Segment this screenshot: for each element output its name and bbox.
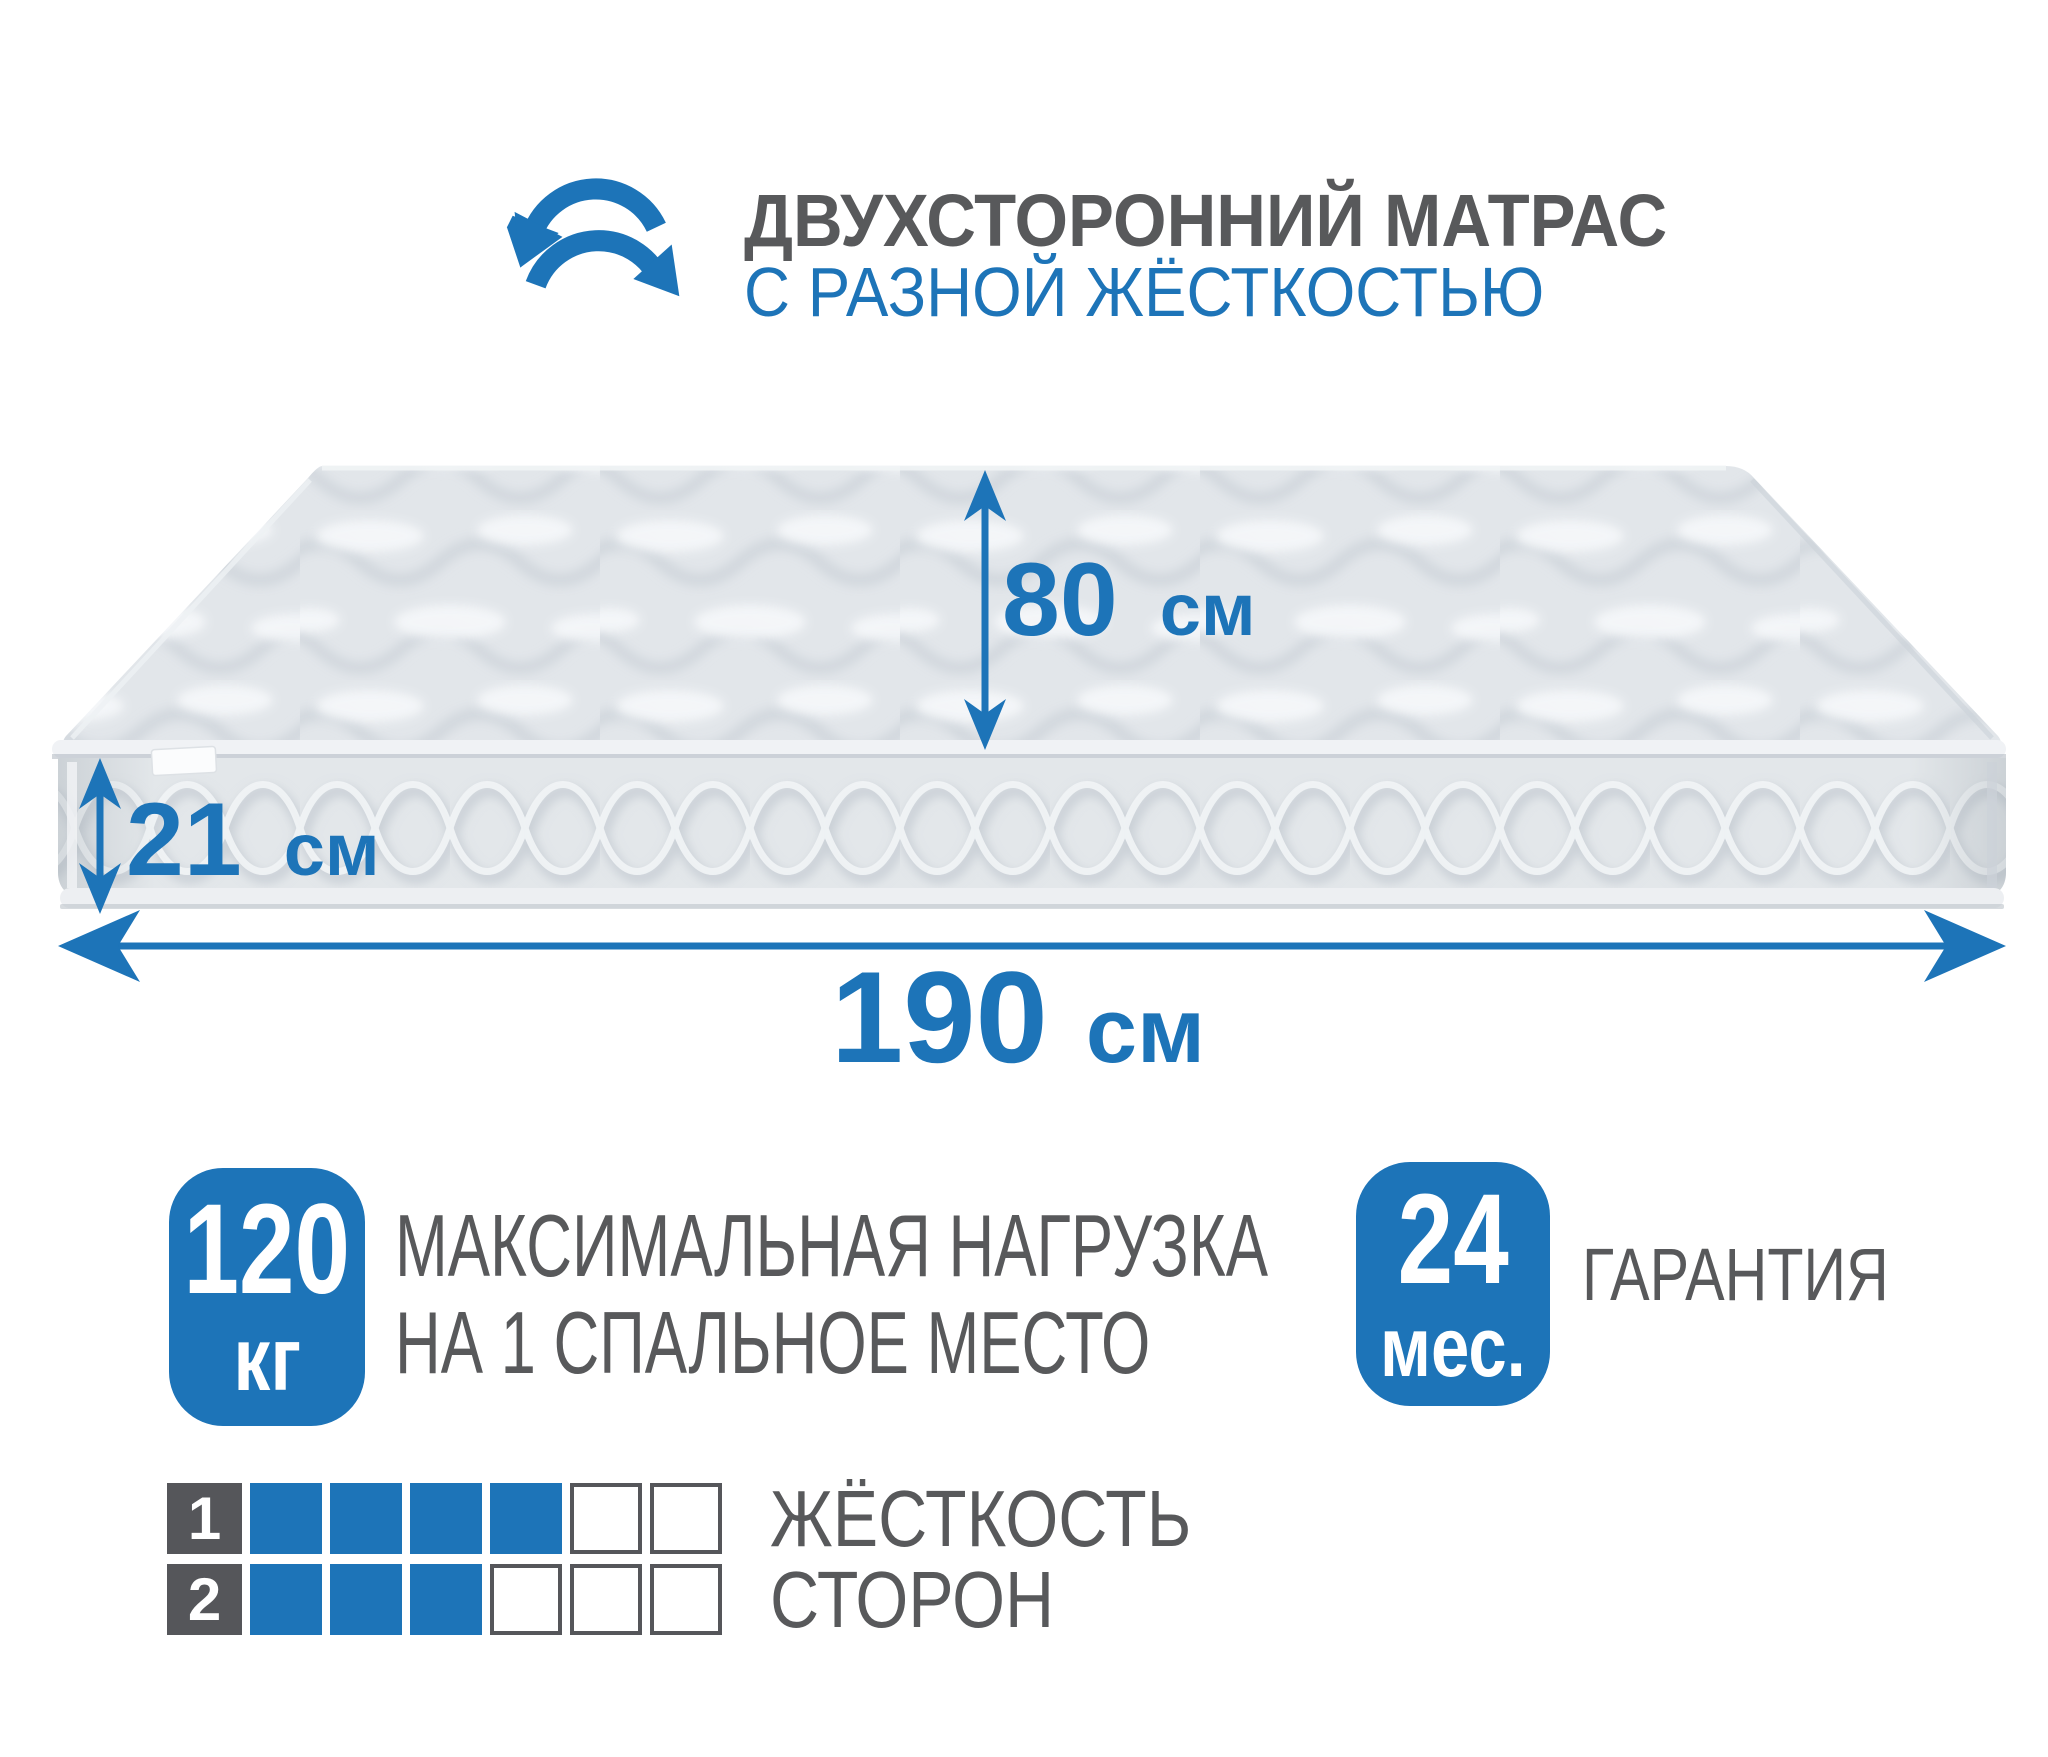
firmness-cell-filled — [490, 1483, 562, 1554]
firmness-cell-filled — [250, 1564, 322, 1635]
mattress-label-tag — [151, 746, 216, 775]
height-value: 21 — [126, 788, 242, 892]
firmness-row: 2 — [167, 1564, 722, 1635]
mattress-illustration — [0, 400, 2048, 1000]
length-value: 190 — [831, 952, 1048, 1082]
firmness-row-label: 1 — [167, 1483, 242, 1554]
firmness-cell-filled — [330, 1483, 402, 1554]
max-load-caption-line1: МАКСИМАЛЬНАЯ НАГРУЗКА — [395, 1198, 1268, 1295]
firmness-cell-empty — [650, 1483, 722, 1554]
height-unit: см — [284, 813, 380, 887]
warranty-unit: мес. — [1380, 1305, 1526, 1389]
mattress-front-piping — [52, 740, 2006, 759]
mattress-diagram: 80 см 21 см 190 см — [0, 400, 2048, 1000]
max-load-caption-line2: НА 1 СПАЛЬНОЕ МЕСТО — [395, 1295, 1268, 1392]
page-subtitle: С РАЗНОЙ ЖЁСТКОСТЬЮ — [744, 252, 1544, 332]
max-load-unit: кг — [233, 1315, 301, 1405]
firmness-cell-filled — [410, 1564, 482, 1635]
depth-value: 80 — [1002, 548, 1118, 652]
firmness-cell-empty — [570, 1483, 642, 1554]
page-title: ДВУХСТОРОННИЙ МАТРАС — [744, 178, 1667, 263]
firmness-cell-filled — [410, 1483, 482, 1554]
firmness-row: 1 — [167, 1483, 722, 1554]
max-load-caption: МАКСИМАЛЬНАЯ НАГРУЗКА НА 1 СПАЛЬНОЕ МЕСТ… — [395, 1198, 1268, 1392]
height-dimension-label: 21 см — [126, 788, 380, 892]
firmness-cell-empty — [650, 1564, 722, 1635]
warranty-value: 24 — [1397, 1179, 1508, 1301]
firmness-cell-filled — [330, 1564, 402, 1635]
max-load-badge: 120 кг — [169, 1168, 365, 1426]
depth-dimension-label: 80 см — [1002, 548, 1256, 652]
warranty-badge: 24 мес. — [1356, 1162, 1550, 1406]
firmness-caption-line1: ЖЁСТКОСТЬ — [770, 1483, 1191, 1554]
firmness-cell-empty — [490, 1564, 562, 1635]
firmness-cell-empty — [570, 1564, 642, 1635]
firmness-cell-filled — [250, 1483, 322, 1554]
rotate-arrows-icon — [505, 168, 687, 344]
length-unit: см — [1086, 985, 1205, 1077]
firmness-row-label: 2 — [167, 1564, 242, 1635]
firmness-caption: ЖЁСТКОСТЬ СТОРОН — [770, 1483, 1266, 1635]
infographic-page: ДВУХСТОРОННИЙ МАТРАС С РАЗНОЙ ЖЁСТКОСТЬЮ — [0, 0, 2048, 1757]
firmness-caption-line2: СТОРОН — [770, 1564, 1191, 1635]
firmness-scale: 12 — [167, 1483, 722, 1635]
length-dimension-label: 190 см — [518, 952, 1518, 1082]
max-load-value: 120 — [184, 1189, 351, 1311]
warranty-caption: ГАРАНТИЯ — [1582, 1238, 1889, 1312]
depth-unit: см — [1160, 573, 1256, 647]
